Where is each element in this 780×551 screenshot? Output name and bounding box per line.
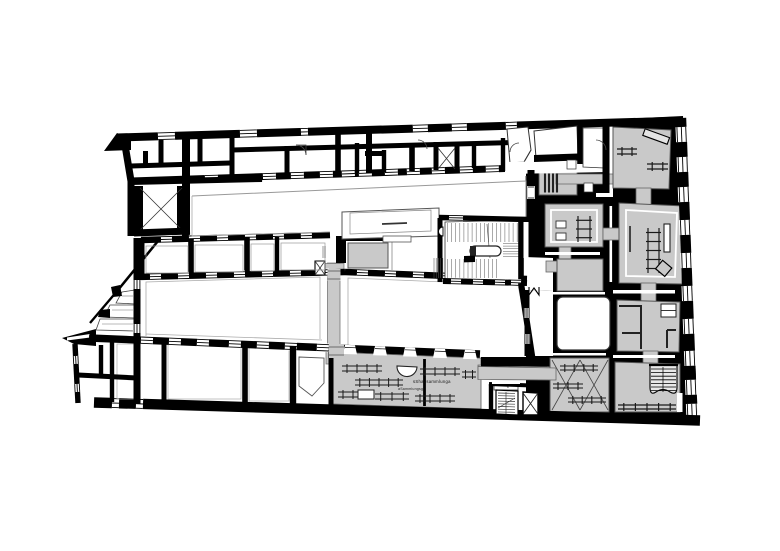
svg-text:sShausammlunga: sShausammlunga [413, 379, 451, 384]
svg-text:aSammlungsg: aSammlungsg [398, 387, 423, 391]
